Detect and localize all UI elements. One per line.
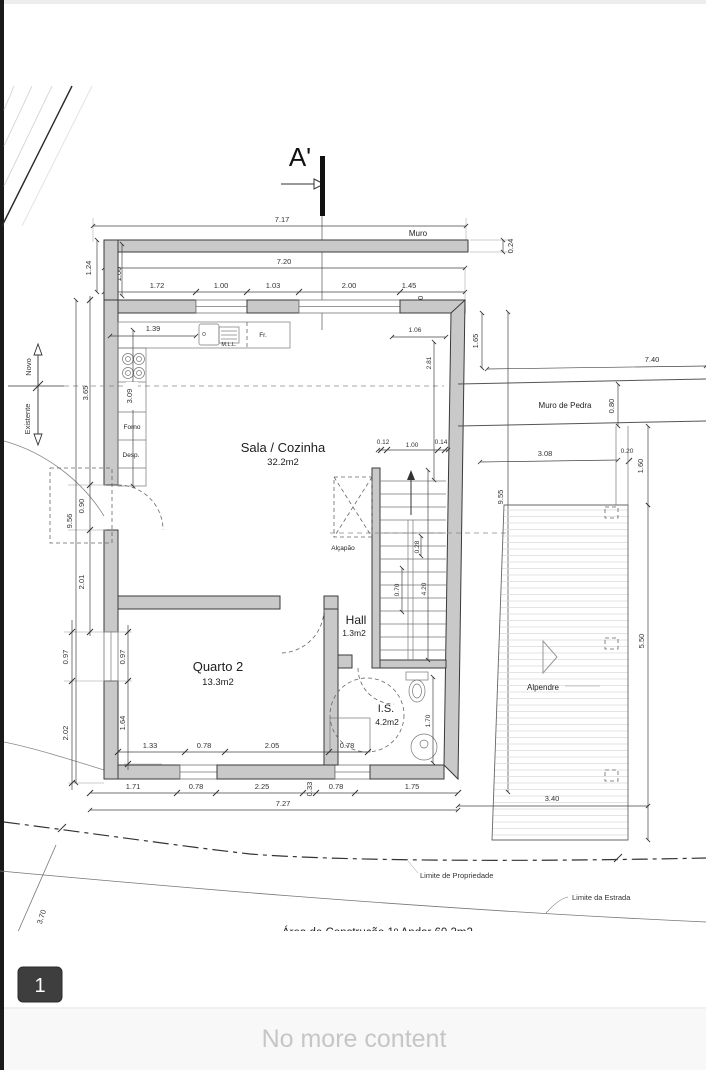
alpendre-label: Alpendre: [527, 683, 560, 692]
fridge-label: Fr.: [259, 332, 267, 339]
room-area-quarto2: 13.3m2: [202, 677, 234, 688]
dim-label: 0.80: [607, 399, 616, 414]
muro-pedra-label: Muro de Pedra: [539, 401, 592, 410]
dim-label: 9.55: [496, 490, 505, 505]
dim-label: 1.33: [143, 741, 158, 750]
dim-label: 1.65: [471, 334, 480, 349]
dim-label: 1.71: [126, 782, 141, 791]
muro-wall: [107, 240, 468, 252]
viewer-canvas: A' 7.17 Muro 0.24 7.20 1.24 1.00 1.72 1.…: [0, 0, 706, 1070]
dim-label: 2.81: [426, 356, 433, 369]
photo-crop-mask: [4, 931, 706, 1008]
dim-label: 0.97: [118, 650, 127, 665]
left-edge-strip: [0, 0, 4, 1070]
dim-label: 1.72: [150, 281, 165, 290]
room-label-hall: Hall: [346, 613, 367, 627]
footer-status-text: No more content: [262, 1025, 447, 1053]
dim-label: 2.05: [265, 741, 280, 750]
page-badge[interactable]: 1: [18, 967, 62, 1002]
dim-label: 0.24: [506, 239, 515, 254]
dim-label: 1.60: [636, 459, 645, 474]
dim-label: 0.14: [435, 439, 448, 446]
dim-label: 0.33: [305, 782, 314, 797]
dim-label: 0.90: [77, 499, 86, 514]
dim-label: 2.00: [342, 281, 357, 290]
dim-label: 1.03: [266, 281, 281, 290]
section-marker-label: A': [289, 142, 311, 172]
room-area-is: 4.2m2: [375, 717, 399, 727]
forno-label: Forno: [124, 424, 141, 431]
dim-label: 2.02: [61, 726, 70, 741]
dim-label: 3.65: [81, 386, 90, 401]
dim-label: 1.24: [84, 261, 93, 276]
dim-label: 0.78: [197, 741, 212, 750]
alcapao-label: Alçapão: [331, 545, 355, 552]
dim-label: 9.56: [65, 514, 74, 529]
dim-label: 0.97: [61, 650, 70, 665]
limite-propriedade-label: Limite de Propriedade: [420, 871, 493, 880]
top-edge-strip: [0, 0, 706, 4]
dim-label: 1.75: [405, 782, 420, 791]
dim-label: 7.20: [277, 257, 292, 266]
dim-label: 0.28: [414, 540, 421, 553]
dim-label: 3.40: [545, 794, 560, 803]
dim-label: 0.12: [377, 439, 390, 446]
novo-label: Novo: [24, 358, 33, 376]
muro-label: Muro: [409, 229, 428, 238]
dim-label: 2.01: [77, 575, 86, 590]
dim-label: 4.20: [421, 582, 428, 595]
dim-label: 0.78: [329, 782, 344, 791]
dim-label: 3.08: [538, 449, 553, 458]
existente-label: Existente: [23, 404, 32, 435]
porch: Alpendre 5.50: [492, 505, 648, 840]
mll-label: M.L.L.: [221, 342, 237, 348]
dim-label: 7.27: [276, 799, 291, 808]
dim-label: 0.78: [340, 741, 355, 750]
room-label-quarto2: Quarto 2: [193, 659, 244, 674]
limite-estrada-label: Limite da Estrada: [572, 893, 631, 902]
page-badge-number: 1: [34, 975, 45, 997]
dim-label: 7.40: [645, 355, 660, 364]
dim-label: 1.45: [402, 281, 417, 290]
room-label-is: I.S.: [378, 703, 395, 715]
room-area-hall: 1.3m2: [342, 628, 366, 638]
dim-label: 1.00: [214, 281, 229, 290]
room-label-sala: Sala / Cozinha: [241, 440, 326, 455]
dim-label: 7.17: [275, 215, 290, 224]
dim-label: 1.39: [146, 324, 161, 333]
dim-label: 1.64: [118, 716, 127, 731]
dim-label: 1.00: [406, 442, 419, 449]
room-area-sala: 32.2m2: [267, 457, 299, 468]
desp-label: Desp.: [123, 452, 140, 459]
dim-label: 1.70: [425, 714, 432, 727]
dim-label: 2.25: [255, 782, 270, 791]
dim-label: 5.50: [637, 634, 646, 649]
dim-label: 0.78: [189, 782, 204, 791]
dim-label: 0.70: [394, 583, 401, 596]
dim-label: 3.09: [125, 389, 134, 404]
dim-label: 0.20: [621, 448, 634, 455]
dim-label: 1.06: [409, 327, 422, 334]
